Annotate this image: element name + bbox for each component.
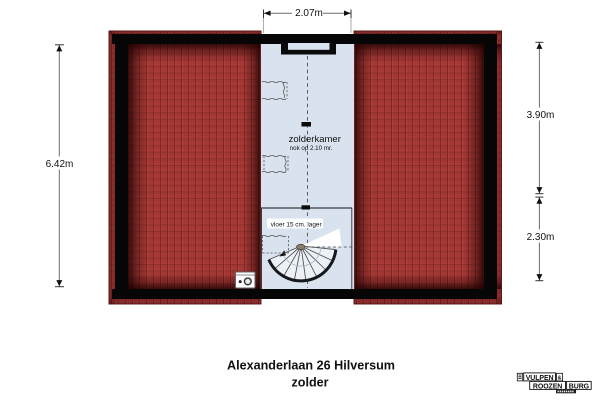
svg-text:2.07m: 2.07m <box>295 8 323 19</box>
svg-text:zolder: zolder <box>291 376 328 390</box>
svg-text:BURG: BURG <box>569 383 590 390</box>
svg-text:VULPEN: VULPEN <box>526 375 554 382</box>
svg-text:nok op 2.10 mr.: nok op 2.10 mr. <box>290 145 333 152</box>
svg-text:6.42m: 6.42m <box>46 159 74 170</box>
svg-text:&: & <box>557 375 561 381</box>
svg-text:3.90m: 3.90m <box>527 110 555 121</box>
svg-text:zolderkamer: zolderkamer <box>289 134 341 145</box>
svg-text:vloer 15 cm. lager: vloer 15 cm. lager <box>271 221 323 228</box>
svg-text:Alexanderlaan 26 Hilversum: Alexanderlaan 26 Hilversum <box>227 359 395 373</box>
svg-text:2.30m: 2.30m <box>527 232 555 243</box>
svg-text:ROOZEN: ROOZEN <box>533 383 562 390</box>
